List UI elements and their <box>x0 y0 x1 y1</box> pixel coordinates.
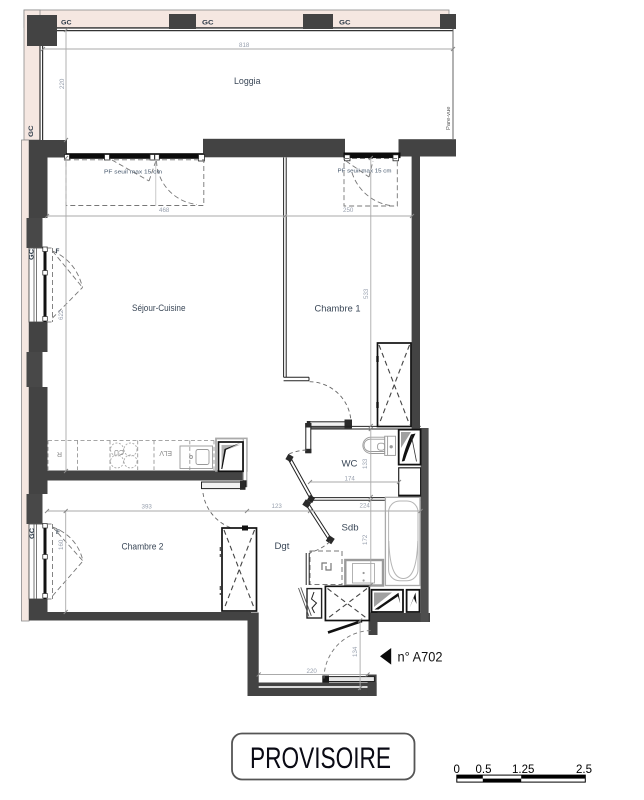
svg-text:818: 818 <box>239 42 250 49</box>
svg-text:Séjour-Cuisine: Séjour-Cuisine <box>132 303 186 314</box>
svg-text:220: 220 <box>307 668 318 675</box>
svg-text:PROVISOIRE: PROVISOIRE <box>250 742 391 775</box>
svg-text:622: 622 <box>58 309 65 320</box>
svg-text:0: 0 <box>454 764 460 776</box>
svg-text:Pare-vue: Pare-vue <box>446 106 452 130</box>
svg-text:GC: GC <box>29 528 36 539</box>
svg-text:F: F <box>56 529 60 536</box>
svg-text:224: 224 <box>360 503 371 510</box>
svg-text:R: R <box>57 450 62 457</box>
svg-text:Loggia: Loggia <box>234 76 261 87</box>
svg-text:0.5: 0.5 <box>476 764 492 776</box>
svg-text:GC: GC <box>28 125 35 137</box>
svg-text:220: 220 <box>59 78 66 89</box>
svg-text:Chambre 1: Chambre 1 <box>315 304 361 315</box>
svg-text:160: 160 <box>58 539 65 550</box>
svg-text:GC: GC <box>29 249 36 260</box>
svg-text:250: 250 <box>343 207 354 214</box>
svg-text:WC: WC <box>342 459 358 470</box>
svg-text:2.5: 2.5 <box>576 764 592 776</box>
svg-text:468: 468 <box>159 207 170 214</box>
svg-text:F: F <box>56 248 60 255</box>
svg-text:GC: GC <box>339 20 351 27</box>
svg-text:CU: CU <box>114 448 124 455</box>
svg-text:393: 393 <box>142 504 153 511</box>
svg-text:ELV: ELV <box>159 449 172 456</box>
svg-text:Chambre 2: Chambre 2 <box>122 542 164 553</box>
svg-text:GC: GC <box>202 20 214 27</box>
svg-text:533: 533 <box>363 288 370 299</box>
svg-text:PF seuil max 15 cm: PF seuil max 15 cm <box>104 170 162 176</box>
svg-text:GC: GC <box>61 20 72 27</box>
svg-text:PF seuil max 15 cm: PF seuil max 15 cm <box>338 169 392 175</box>
svg-text:134: 134 <box>352 646 359 657</box>
svg-text:1.25: 1.25 <box>512 764 534 776</box>
svg-text:174: 174 <box>345 476 356 483</box>
svg-text:Dgt: Dgt <box>275 541 290 552</box>
svg-text:133: 133 <box>362 458 369 469</box>
svg-text:172: 172 <box>362 534 369 545</box>
svg-text:n° A702: n° A702 <box>398 650 443 665</box>
svg-text:123: 123 <box>272 503 283 510</box>
svg-text:Sdb: Sdb <box>342 523 359 534</box>
